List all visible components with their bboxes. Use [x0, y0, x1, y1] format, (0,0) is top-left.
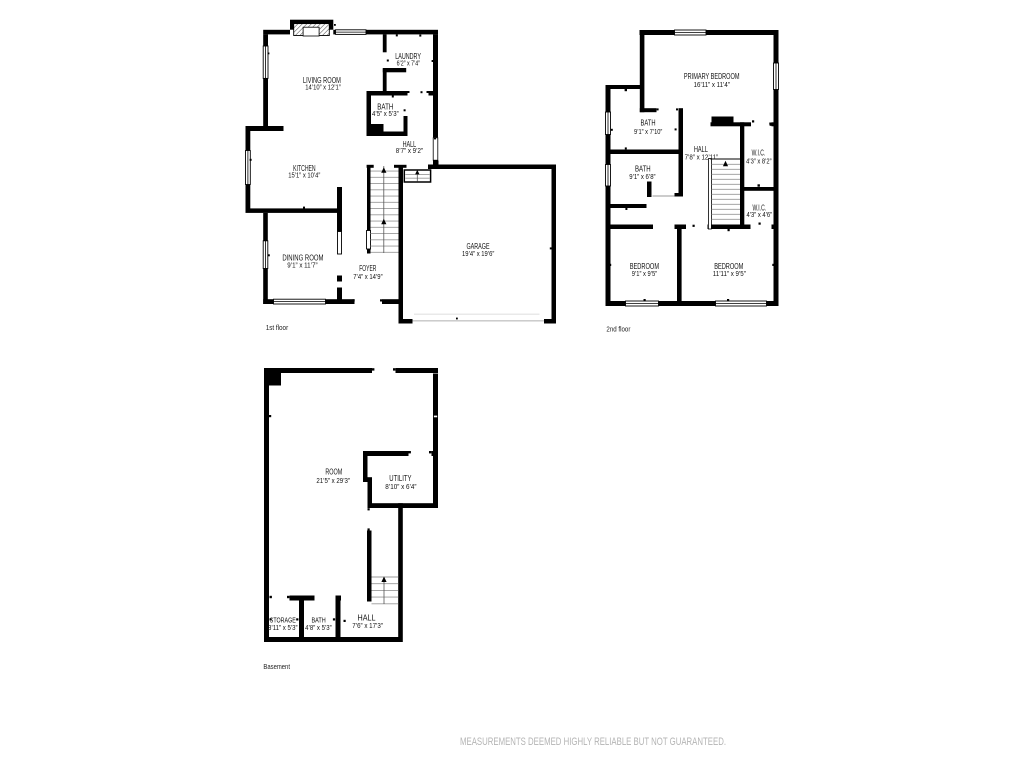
svg-text:BATH: BATH [311, 615, 325, 624]
svg-text:9’1” x 9’5”: 9’1” x 9’5” [632, 269, 658, 278]
svg-text:9’1” x 11’7”: 9’1” x 11’7” [287, 261, 318, 270]
svg-text:7’4” x 14’9”: 7’4” x 14’9” [353, 272, 383, 281]
svg-text:Basement: Basement [263, 662, 290, 671]
svg-text:7’8” x 12’11”: 7’8” x 12’11” [685, 152, 719, 161]
svg-text:19’4” x 19’6”: 19’4” x 19’6” [462, 249, 495, 258]
svg-text:MEASUREMENTS DEEMED HIGHLY REL: MEASUREMENTS DEEMED HIGHLY RELIABLE BUT … [460, 736, 726, 748]
svg-text:9’1” x 7’10”: 9’1” x 7’10” [634, 127, 663, 136]
svg-text:7’6” x 17’3”: 7’6” x 17’3” [352, 621, 383, 630]
svg-text:15’1” x 10’4”: 15’1” x 10’4” [288, 170, 321, 179]
svg-text:4’5” x 5’3”: 4’5” x 5’3” [372, 109, 399, 118]
svg-text:6’2” x 7’4”: 6’2” x 7’4” [397, 59, 421, 68]
svg-text:2nd floor: 2nd floor [606, 324, 630, 333]
svg-text:11’11” x 9’5”: 11’11” x 9’5” [713, 269, 746, 278]
svg-text:4’3” x 8’2”: 4’3” x 8’2” [746, 157, 772, 166]
svg-text:16’11” x 11’4”: 16’11” x 11’4” [694, 80, 731, 89]
svg-text:4’3” x 4’6”: 4’3” x 4’6” [747, 210, 773, 219]
svg-text:1st floor: 1st floor [266, 323, 289, 332]
svg-text:4’8” x 5’3”: 4’8” x 5’3” [305, 625, 332, 632]
svg-text:STORAGE: STORAGE [270, 615, 296, 624]
svg-text:9’1” x 6’8”: 9’1” x 6’8” [629, 172, 656, 181]
svg-text:8’7” x 9’2”: 8’7” x 9’2” [396, 146, 424, 155]
svg-text:3’11” x 5’3”: 3’11” x 5’3” [268, 625, 298, 632]
svg-text:21’5” x 29’3”: 21’5” x 29’3” [316, 476, 350, 485]
svg-text:8’10” x 6’4”: 8’10” x 6’4” [385, 482, 417, 491]
svg-text:14’10” x 12’1”: 14’10” x 12’1” [305, 82, 341, 91]
